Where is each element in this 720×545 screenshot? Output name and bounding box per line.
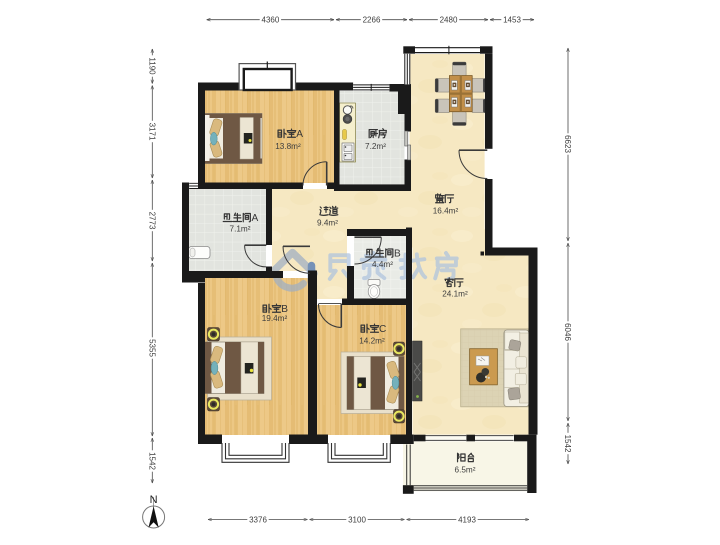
svg-text:6046: 6046: [563, 323, 572, 341]
svg-text:9.4m²: 9.4m²: [317, 218, 338, 227]
svg-text:3100: 3100: [348, 515, 366, 524]
svg-text:N: N: [150, 494, 158, 506]
svg-text:5355: 5355: [147, 339, 156, 357]
svg-text:13.8m²: 13.8m²: [275, 142, 301, 151]
svg-text:4193: 4193: [458, 515, 476, 524]
svg-text:7.1m²: 7.1m²: [230, 224, 251, 233]
svg-text:4.4m²: 4.4m²: [372, 260, 393, 269]
svg-text:C: C: [379, 324, 386, 335]
svg-text:1190: 1190: [147, 57, 156, 75]
svg-text:B: B: [394, 249, 401, 260]
svg-text:2266: 2266: [363, 16, 381, 25]
svg-text:1542: 1542: [563, 435, 572, 453]
svg-text:14.2m²: 14.2m²: [359, 336, 385, 345]
svg-text:6623: 6623: [563, 135, 572, 153]
svg-text:16.4m²: 16.4m²: [433, 206, 459, 215]
svg-text:3376: 3376: [249, 515, 267, 524]
svg-text:24.1m²: 24.1m²: [442, 289, 468, 298]
svg-text:3171: 3171: [147, 123, 156, 141]
svg-text:A: A: [296, 129, 303, 140]
svg-text:6.5m²: 6.5m²: [455, 465, 476, 474]
svg-text:7.2m²: 7.2m²: [365, 142, 386, 151]
svg-text:2773: 2773: [147, 212, 156, 230]
svg-text:1453: 1453: [503, 16, 521, 25]
svg-text:2480: 2480: [440, 16, 458, 25]
svg-text:1542: 1542: [147, 452, 156, 470]
svg-text:19.4m²: 19.4m²: [262, 314, 288, 323]
svg-text:4360: 4360: [262, 16, 280, 25]
svg-text:A: A: [252, 213, 259, 224]
